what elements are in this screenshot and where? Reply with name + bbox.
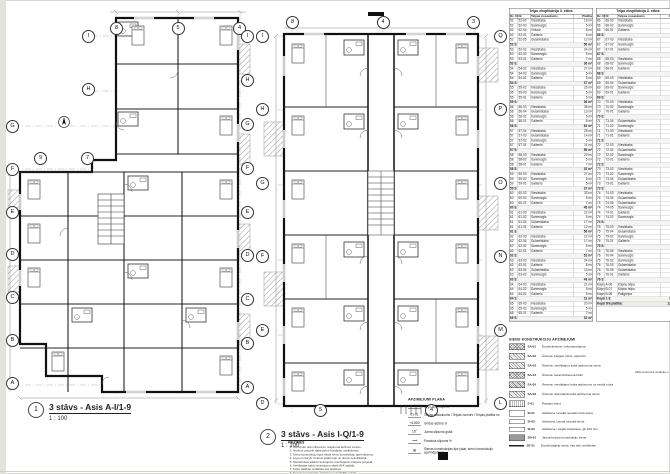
grid-axis-bubble: F <box>241 162 254 175</box>
plan1-axes-left: GFEDCBA <box>6 120 19 390</box>
grid-axis-bubble: G <box>6 120 19 133</box>
wall-swatch-icon <box>509 420 525 425</box>
plan1-scale: 1 : 100 <box>49 416 131 422</box>
plan2-number-bubble: 2 <box>260 429 276 445</box>
plan2-title: 3 stāvs - Asis I-Q/1-9 <box>281 429 364 441</box>
plan-symbol-glyph-icon: +4.500 <box>408 422 421 427</box>
plan-symbol-item: ⟶ Pandusa slīpums % <box>408 439 513 444</box>
wall-legend-item: SA-06 Ārsiena: dekoratīvā koka apšuvuma … <box>509 391 669 398</box>
plan2-axes-top: 843 <box>286 16 480 29</box>
floor-plan-2-drawing <box>256 4 506 426</box>
wall-type-code: SI-03 <box>528 428 540 431</box>
wall-legend-item: SA-05 Ārsiena: ventilējams koka apšuvums… <box>509 382 669 389</box>
grid-axis-bubble: D <box>241 249 254 262</box>
grid-axis-bubble: N <box>494 250 507 263</box>
wall-type-code: SE-01 <box>527 444 539 447</box>
north-arrow-icon <box>59 117 70 128</box>
grid-axis-bubble: 5 <box>314 404 327 417</box>
plan-symbols-list: ⊕ Logu apzīmējums 01-01 Telpas nosaukums… <box>408 404 513 455</box>
wall-type-code: SA-03 <box>528 364 540 367</box>
wall-type-description: Ārsiena: ventilējama koka apšuvuma siena <box>542 364 601 368</box>
grid-axis-bubble: 3 <box>467 16 480 29</box>
grid-axis-bubble: H <box>256 103 269 116</box>
plan-symbol-label: Jumta slīpuma grādi <box>424 431 452 435</box>
grid-axis-bubble: B <box>241 337 254 350</box>
room-schedule-table-2: Telpu eksplikācija 3. stāvs Dz. NrNr Tel… <box>596 8 670 322</box>
grid-axis-bubble: F <box>256 250 269 263</box>
plan1-number-bubble: 1 <box>28 402 44 418</box>
grid-axis-bubble: A <box>241 381 254 394</box>
plan-symbol-glyph-icon: ⟶ <box>408 439 421 444</box>
plan1-axes-top: 854 <box>110 22 246 35</box>
wall-legend-title: SIENU KONSTRUKCIJU APZĪMĒJUMI <box>509 338 669 342</box>
room-schedule-tables: Telpu eksplikācija 3. stāvs Dz. NrNr Tel… <box>509 8 669 338</box>
wall-type-description: Iekšsiena / vieglā starpsiena, ģk 100 mm <box>542 428 598 432</box>
grid-axis-bubble: B <box>6 334 19 347</box>
wall-legend-item: SB-01 Jaunā betona konstrukciju siena <box>509 435 669 442</box>
grid-axis-bubble: E <box>241 206 254 219</box>
plan-symbol-glyph-icon: 15° <box>408 430 421 435</box>
wall-swatch-icon <box>509 427 525 432</box>
floor-plan-1-drawing <box>6 4 252 402</box>
grid-axis-bubble: D <box>256 397 269 410</box>
grid-axis-bubble: E <box>256 324 269 337</box>
wall-type-code: SI-01 <box>528 412 540 415</box>
plan-symbol-item: ⊕ Logu apzīmējums <box>408 404 513 409</box>
grid-axis-bubble: G <box>256 177 269 190</box>
grid-axis-bubble: 8 <box>110 22 123 35</box>
table1-rows: 5252-02 Viesistaba19 m² 5252-03 Sanmezgl… <box>510 19 593 321</box>
wall-swatch-icon <box>509 372 525 379</box>
wall-type-description: Iekšsiena / esošā nesošā mūra siena <box>542 412 593 416</box>
plan1-axes-mid: 97 <box>34 152 94 165</box>
grid-axis-bubble: M <box>494 324 507 337</box>
grid-axis-bubble: 5 <box>172 22 185 35</box>
wall-legend-item: SE-01 Esošā ķieģeļu siena, kas tiek nosi… <box>509 444 669 448</box>
plan1-title: 3 stāvs - Asis A-I/1-9 <box>49 402 131 414</box>
grid-axis-bubble: H <box>241 74 254 87</box>
grid-axis-bubble: E <box>6 206 19 219</box>
plan1-axes-right: IHGFEDCBA <box>241 30 254 394</box>
grid-axis-bubble: C <box>241 293 254 306</box>
plan-symbol-label: Pandusa slīpums % <box>424 439 452 443</box>
wall-swatch-icon <box>509 445 524 447</box>
grid-axis-bubble: O <box>494 177 507 190</box>
wall-swatch-icon <box>509 391 525 398</box>
plan1-axes-left-upper: IH <box>82 30 95 96</box>
grid-axis-bubble: H <box>82 83 95 96</box>
wall-legend-item: SI-03 Iekšsiena / vieglā starpsiena, ģk … <box>509 427 669 432</box>
wall-legend-item: SI-02 Iekšsiena / jaunā nesošā siena <box>509 420 669 425</box>
wall-type-code: SA-02 <box>528 355 540 358</box>
wall-swatch-icon <box>509 435 525 442</box>
wall-type-code: SA-05 <box>528 383 540 386</box>
wall-swatch-icon <box>509 382 525 389</box>
table-row: Kopā tīrā platība: 1293 m² <box>597 302 670 307</box>
wall-type-description: Esošā ķieģeļu siena, kas tiek nosiltināt… <box>541 444 596 448</box>
wall-type-code: SA-04 <box>528 374 540 377</box>
table2-rows: 6666-03 Viesistaba20 m² 6666-02 Sanmezgl… <box>597 19 670 307</box>
plan2-axes-right: QPONML <box>494 30 507 410</box>
plan-symbol-glyph-icon: 01-01 <box>408 413 421 418</box>
grid-axis-bubble: I <box>256 30 269 43</box>
wall-legend-item: SA-01 Esošā ārsiena / rekonstruējama <box>509 344 669 351</box>
wall-legend-list: SA-01 Esošā ārsiena / rekonstruējama SA-… <box>509 344 669 448</box>
wall-swatch-icon <box>509 363 525 370</box>
grid-axis-bubble: I <box>82 30 95 43</box>
wall-type-description: Ārsiena: dekoratīvā koka apšuvuma siena <box>542 393 599 397</box>
wall-type-description: Ārsiena: ķieģeļu mūris, apmests <box>542 355 586 359</box>
plan1-title-block: 1 3 stāvs - Asis A-I/1-9 1 : 100 <box>28 402 131 422</box>
plan-symbol-label: Telpas nosaukums / Telpas numurs / Telpa… <box>424 414 500 418</box>
plan-symbols-block: APZĪMĒJUMI PLĀNĀ ⊕ Logu apzīmējums 01-01… <box>408 398 513 474</box>
stamp-mark <box>438 452 448 460</box>
wall-legend-item: SA-02 Ārsiena: ķieģeļu mūris, apmests <box>509 353 669 360</box>
plan-symbols-title: APZĪMĒJUMI PLĀNĀ <box>408 398 513 402</box>
plan-symbol-label: Sienas konstrukcijas tips (skat. sienu k… <box>424 448 509 455</box>
grid-axis-bubble: Q <box>494 30 507 43</box>
plan-symbol-glyph-icon: ⊠ <box>408 449 421 454</box>
plan-symbol-glyph-icon: ⊕ <box>408 404 421 409</box>
plan-symbol-label: Grīdas atzīme m <box>424 422 447 426</box>
grid-axis-bubble: A <box>6 377 19 390</box>
wall-type-code: S-01 <box>528 402 540 405</box>
grid-axis-bubble: P <box>494 103 507 116</box>
wall-type-code: SA-06 <box>528 393 540 396</box>
wall-type-description: Ārsiena: keramzītbetona bloki <box>542 374 583 378</box>
grid-axis-bubble: D <box>6 248 19 261</box>
grid-axis-bubble: 8 <box>286 16 299 29</box>
wall-swatch-icon <box>509 344 525 351</box>
wall-type-description: Ārsiena: ventilējams koka apšuvums uz es… <box>542 383 613 387</box>
wall-legend-item: S-01 Pamatu siena <box>509 401 669 408</box>
plan-symbol-item: 15° Jumta slīpuma grādi <box>408 430 513 435</box>
plan2-axes-left: IHGFED <box>256 30 269 410</box>
grid-axis-bubble: C <box>6 291 19 304</box>
grid-axis-bubble: 4 <box>377 16 390 29</box>
wall-type-code: SA-01 <box>528 345 540 348</box>
grid-axis-bubble: F <box>6 163 19 176</box>
drawing-sheet: { "plan1": { "num": "1", "title": "3 stā… <box>0 0 670 474</box>
grid-axis-bubble: I <box>241 30 254 43</box>
wall-legend-item: SA-03 Ārsiena: ventilējama koka apšuvuma… <box>509 363 669 370</box>
wall-type-code: SB-01 <box>528 436 540 439</box>
wall-type-description: Pamatu siena <box>542 402 561 406</box>
floor-plan-2: 843 IHGFED QPONML 54 <box>256 4 506 426</box>
room-schedule-table-1: Telpu eksplikācija 3. stāvs Dz. NrNr Tel… <box>509 8 593 322</box>
wall-swatch-icon <box>509 353 525 360</box>
table-row: 65 S: 32 m² <box>510 316 593 321</box>
plan-symbol-item: ⊠ Sienas konstrukcijas tips (skat. sienu… <box>408 448 513 455</box>
plan-symbol-item: +4.500 Grīdas atzīme m <box>408 422 513 427</box>
wall-type-description: Esošā ārsiena / rekonstruējama <box>542 345 586 349</box>
wall-type-description: Jaunā betona konstrukciju siena <box>542 436 586 440</box>
grid-axis-bubble: G <box>241 118 254 131</box>
plan-symbol-item: 01-01 Telpas nosaukums / Telpas numurs /… <box>408 413 513 418</box>
wall-legend-note: Siltā perimetra izolācija: min 150 <box>635 371 669 374</box>
grid-axis-bubble: 9 <box>34 152 47 165</box>
wall-swatch-icon <box>509 401 525 408</box>
wall-legend-block: SIENU KONSTRUKCIJU APZĪMĒJUMI SA-01 Esoš… <box>509 338 669 470</box>
wall-type-code: SI-02 <box>528 420 540 423</box>
wall-type-description: Iekšsiena / jaunā nesošā siena <box>542 420 584 424</box>
wall-legend-item: SI-01 Iekšsiena / esošā nesošā mūra sien… <box>509 410 669 417</box>
wall-swatch-icon <box>509 410 525 417</box>
floor-plan-1: 854 97 IH GFEDCBA IHGFEDCBA <box>6 4 252 402</box>
grid-axis-bubble: 7 <box>81 152 94 165</box>
plan-symbol-label: Logu apzīmējums <box>424 405 449 409</box>
